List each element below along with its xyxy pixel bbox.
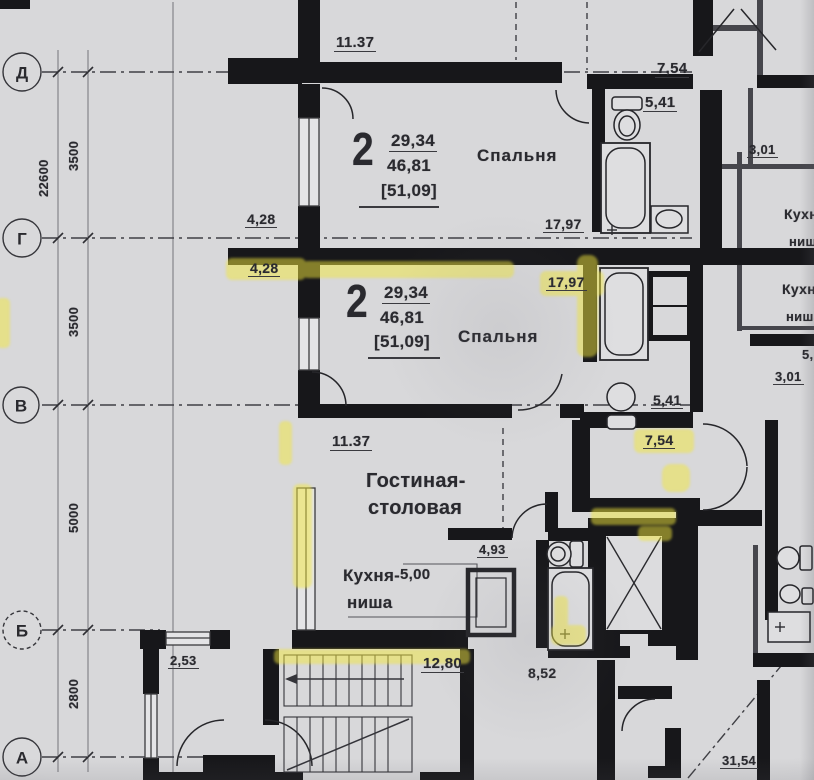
dim-wall-left-mid: 4,28 [248, 260, 280, 277]
area-fraction-line-mid [368, 357, 440, 359]
apt-mid-overall-area: [51,09] [374, 332, 430, 352]
apt-mid-living-area: 29,34 [382, 283, 430, 304]
apt-top-total-area: 46,81 [387, 156, 431, 176]
axis-label-g: Г [17, 230, 27, 249]
dim-niche-lower-partial: 5, [802, 347, 813, 362]
dim-seg-g-v: 3500 [66, 307, 81, 337]
dim-entry-hall: 4,93 [477, 542, 508, 558]
axis-label-v: В [15, 397, 27, 416]
dim-seg-v-b: 5000 [66, 503, 81, 533]
dim-wall-right-mid: 17,97 [546, 274, 587, 291]
apt-top-rooms-count: 2 [352, 128, 374, 172]
dim-hall-top: 7,54 [655, 60, 689, 78]
area-fraction-line-top [359, 206, 439, 208]
sink-icon-right-bath [768, 612, 810, 642]
vent-shaft [650, 274, 690, 338]
floorplan-photo: Д Г В Б А 22600 3500 3500 5000 2800 11.3… [0, 0, 814, 780]
dim-wall-left-top: 4,28 [245, 211, 277, 228]
dim-kitchen-niche: 5,00 [400, 566, 430, 583]
bathtub-icon-mid-bath [600, 268, 648, 360]
room-label-kitchen-niche-1: Кухня- [343, 566, 400, 586]
dim-niche-lower: 3,01 [773, 369, 804, 385]
axis-label-d: Д [16, 64, 28, 83]
staircase [284, 655, 412, 772]
dim-stairs: 12,80 [421, 655, 464, 673]
dim-bath-mid: 5,41 [651, 392, 683, 409]
apt-mid-rooms-count: 2 [346, 280, 368, 324]
room-label-kitchen-lower-1: Кухня [782, 281, 814, 297]
dim-room-width-top: 11.37 [334, 34, 376, 52]
room-label-bedroom-top: Спальня [477, 146, 557, 166]
room-label-living-1: Гостиная- [366, 470, 466, 493]
dim-seg-d-g: 3500 [66, 141, 81, 171]
dim-lift-lobby: 8,52 [528, 665, 556, 681]
dim-wall-right-top: 17,97 [543, 216, 584, 233]
toilet-icon-lower-bath [547, 541, 583, 567]
toilet-icon-right-bath [777, 546, 812, 570]
apt-top-overall-area: [51,09] [381, 181, 437, 201]
bathtub-icon-top-bath [601, 143, 650, 233]
toilet-icon-top-bath [612, 97, 642, 140]
room-label-kitchen-niche-2: ниша [347, 593, 393, 613]
bidet-icon-right-bath [780, 585, 813, 604]
dim-niche-upper: 3,01 [747, 142, 778, 158]
dim-seg-b-a: 2800 [66, 679, 81, 709]
apt-top-living-area: 29,34 [389, 131, 437, 152]
dim-vestibule: 2,53 [168, 653, 199, 669]
room-label-bedroom-mid: Спальня [458, 327, 538, 347]
dim-corridor: 31,54 [720, 753, 758, 769]
wardrobe-icon [468, 570, 514, 635]
floorplan-drawing: Д Г В Б А [0, 0, 814, 780]
dim-bath-top: 5,41 [643, 94, 677, 112]
axis-label-b: Б [16, 622, 28, 641]
dim-living-width: 11.37 [330, 433, 372, 451]
dim-hall-mid: 7,54 [643, 432, 675, 449]
room-label-kitchen-upper-2: ниша [789, 234, 814, 249]
dimension-ticks [53, 67, 93, 762]
dim-overall-height: 22600 [36, 159, 51, 197]
washbasin-icon-mid-bath [607, 383, 636, 429]
room-label-kitchen-lower-2: ниша [786, 309, 814, 324]
apt-mid-total-area: 46,81 [380, 308, 424, 328]
axis-label-a: А [16, 749, 28, 768]
sink-icon-top-bath [651, 206, 688, 233]
room-label-living-2: столовая [368, 497, 462, 520]
room-label-kitchen-upper-1: Кухня [784, 206, 814, 222]
